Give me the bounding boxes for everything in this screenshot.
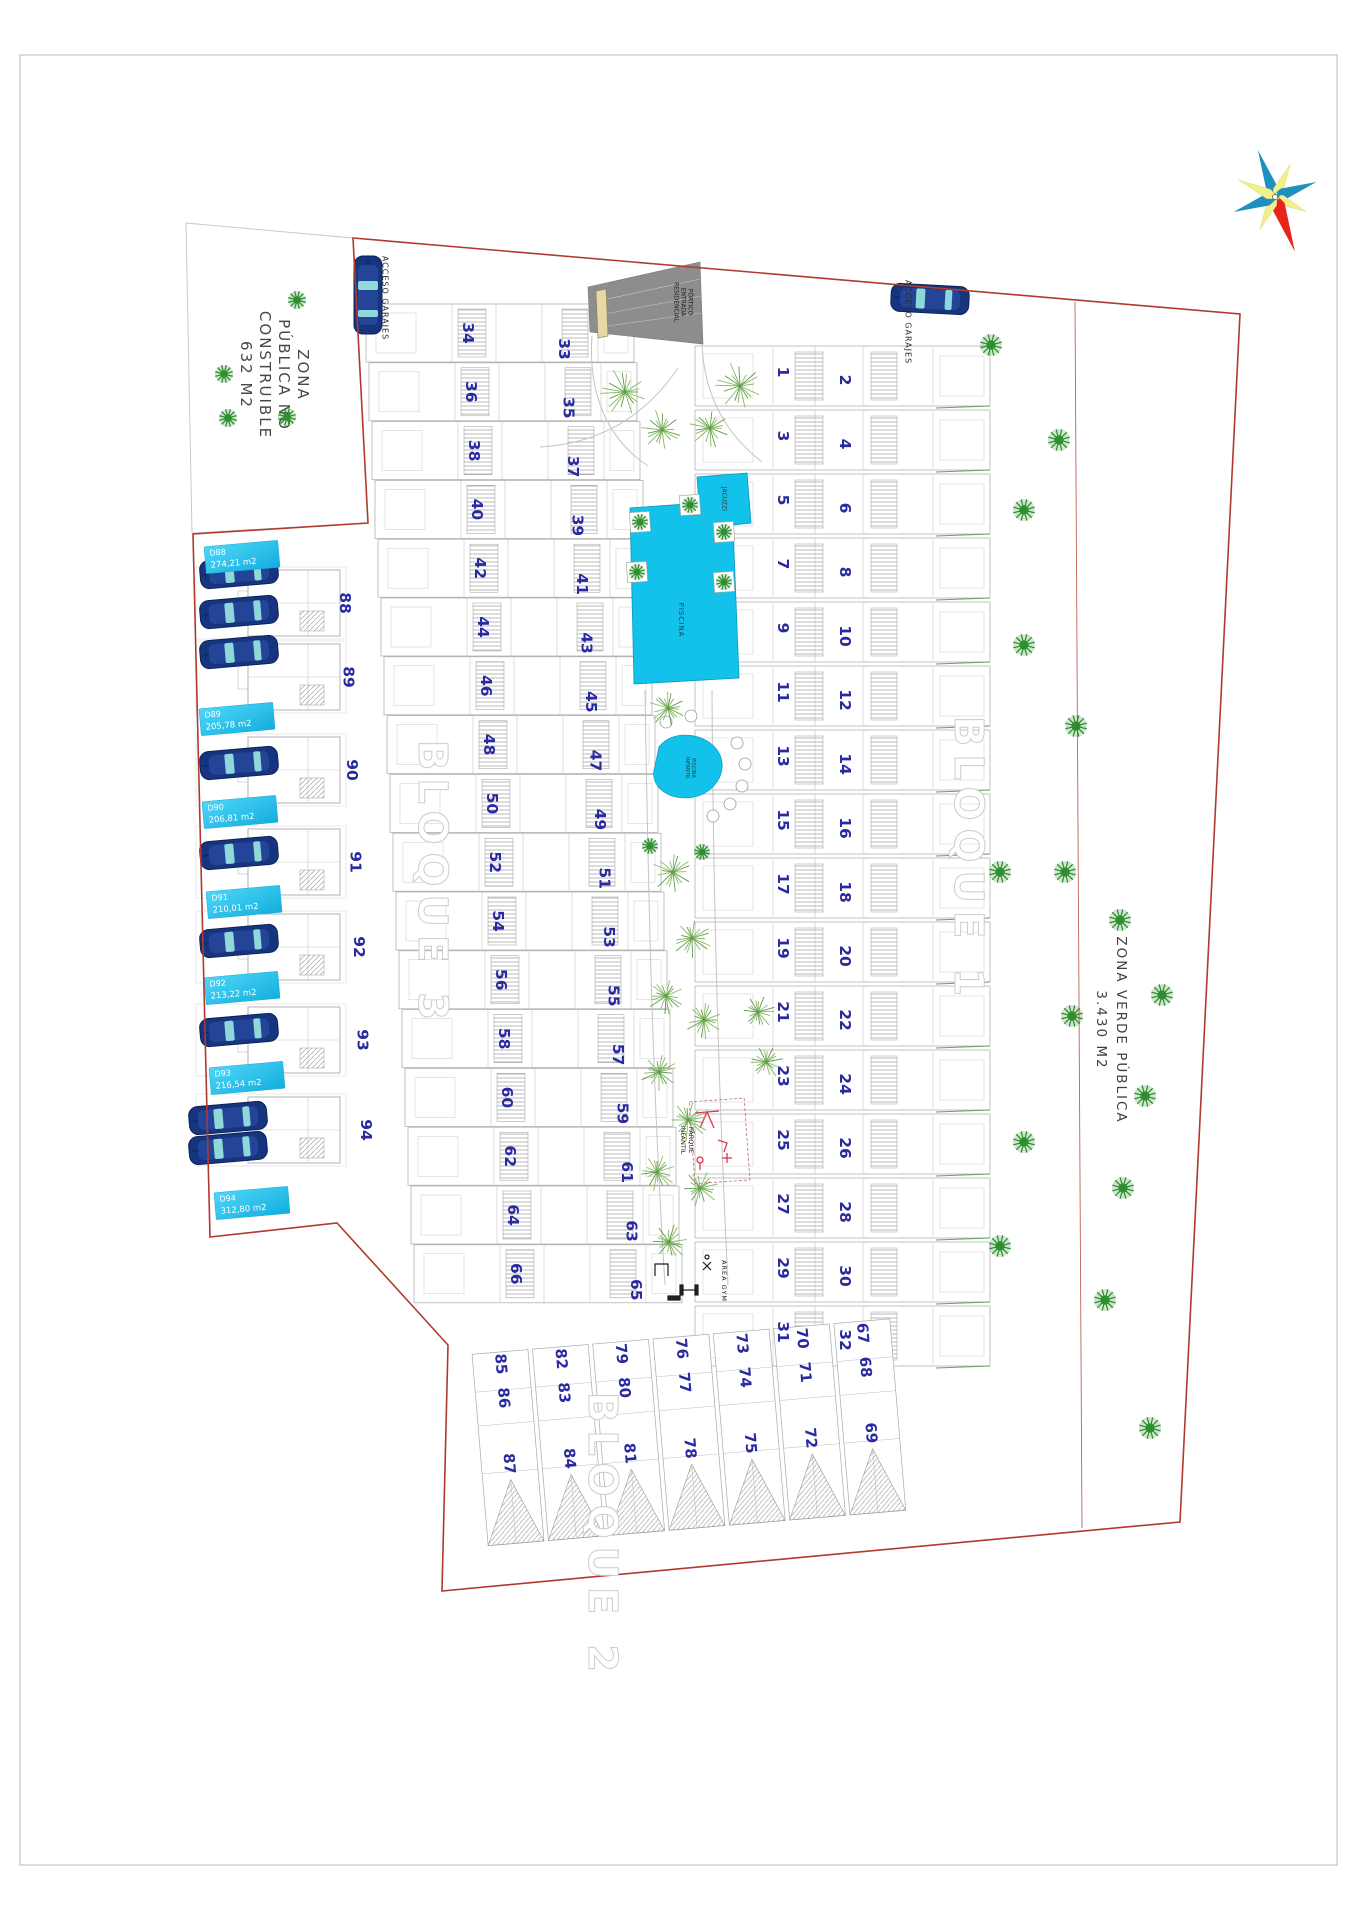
plot-number: 72 <box>801 1427 821 1449</box>
tree-icon <box>632 514 648 530</box>
parcel-code: D90 <box>207 802 224 812</box>
bloque3-row <box>405 1068 673 1126</box>
tree-icon <box>989 861 1011 883</box>
acceso-garajes-left-label: ACCESO GARAJES <box>381 256 390 340</box>
piscina-label: PISCINA <box>677 603 685 638</box>
tree-icon <box>1054 861 1076 883</box>
plot-number: 3 <box>774 431 792 442</box>
plot-number: 1 <box>774 367 792 378</box>
plot-number: 33 <box>555 338 573 360</box>
plot-number: 69 <box>861 1422 881 1444</box>
zona-publica-area: ZONA PÚBLICA NO CONSTRUIBLE 632 M2 <box>186 223 368 533</box>
parcel-code: D94 <box>219 1193 236 1203</box>
parcel-code: D91 <box>211 892 228 902</box>
plot-number: 73 <box>732 1332 752 1354</box>
plot-number: 94 <box>357 1119 375 1141</box>
plot-number: 88 <box>336 592 354 614</box>
plot-number: 30 <box>836 1265 854 1287</box>
tree-icon <box>288 291 306 309</box>
plot-number: 37 <box>564 456 582 478</box>
plot-number: 29 <box>774 1257 792 1279</box>
plot-number: 54 <box>489 910 507 932</box>
plot-number: 25 <box>774 1129 792 1151</box>
plot-number: 77 <box>675 1371 695 1393</box>
plot-number: 86 <box>494 1387 514 1409</box>
tree-icon <box>1094 1289 1116 1311</box>
plot-number: 32 <box>836 1329 854 1351</box>
bloque3-text: BLOQUE 3 <box>409 740 455 1028</box>
plot-number: 28 <box>836 1201 854 1223</box>
plot-number: 90 <box>343 759 361 781</box>
plot-number: 4 <box>836 439 854 450</box>
tree-icon <box>278 408 296 426</box>
zona-verde-area-value: 3.430 M2 <box>1093 990 1109 1069</box>
plot-number: 75 <box>741 1432 761 1454</box>
bloque3-row <box>384 657 652 715</box>
plot-number: 45 <box>582 691 600 713</box>
bloque2-text: BLOQUE 2 <box>579 1392 625 1680</box>
bloque1-text: BLOQUE 1 <box>945 716 991 1004</box>
plot-number: 42 <box>471 557 489 579</box>
plot-number: 87 <box>500 1452 520 1474</box>
plot-number: 8 <box>836 567 854 578</box>
plot-number: 7 <box>774 559 792 570</box>
plot-number: 83 <box>554 1382 574 1404</box>
tree-icon <box>1013 1131 1035 1153</box>
plot-number: 84 <box>560 1447 580 1469</box>
plot-number: 60 <box>498 1087 516 1109</box>
plot-number: 76 <box>672 1337 692 1359</box>
zona-verde-label: ZONA VERDE PÚBLICA <box>1113 936 1131 1123</box>
plot-number: 55 <box>605 985 623 1007</box>
zona-publica-label: ZONA <box>294 349 312 401</box>
acceso-garajes-right-label: ACCESO GARAJES <box>904 280 913 364</box>
plot-number: 59 <box>614 1103 632 1125</box>
plot-number: 27 <box>774 1193 792 1215</box>
plot-number: 35 <box>560 397 578 419</box>
bloque3-row <box>369 363 637 421</box>
plot-number: 58 <box>495 1028 513 1050</box>
plot-number: 61 <box>618 1161 636 1183</box>
plot-number: 36 <box>462 381 480 403</box>
plot-number: 22 <box>836 1009 854 1031</box>
bloque3-row <box>381 598 649 656</box>
plot-number: 65 <box>627 1279 645 1301</box>
plot-number: 52 <box>486 851 504 873</box>
plot-number: 50 <box>483 793 501 815</box>
plot-number: 48 <box>480 734 498 756</box>
plot-number: 71 <box>796 1361 816 1383</box>
tree-icon <box>980 334 1002 356</box>
plot-number: 56 <box>492 969 510 991</box>
zona-publica-label: CONSTRUIBLE <box>256 311 274 439</box>
tree-icon <box>219 409 237 427</box>
plot-number: 21 <box>774 1001 792 1023</box>
tree-icon <box>1109 909 1131 931</box>
plot-number: 11 <box>774 681 792 703</box>
plot-number: 34 <box>459 322 477 344</box>
tree-icon <box>716 574 732 590</box>
plot-number: 9 <box>774 623 792 634</box>
plot-number: 38 <box>465 440 483 462</box>
tree-icon <box>215 365 233 383</box>
tree-icon <box>716 524 732 540</box>
plot-number: 51 <box>596 867 614 889</box>
plot-number: 10 <box>836 625 854 647</box>
site-plan-page: ZONA PÚBLICA NO CONSTRUIBLE 632 M2 85868… <box>0 0 1357 1920</box>
plot-number: 12 <box>836 689 854 711</box>
plot-number: 82 <box>551 1348 571 1370</box>
tree-icon <box>642 838 658 854</box>
tree-icon <box>1151 984 1173 1006</box>
plot-number: 40 <box>468 499 486 521</box>
plot-number: 64 <box>504 1204 522 1226</box>
gym-label: AREA GYM <box>720 1260 728 1302</box>
plot-number: 23 <box>774 1065 792 1087</box>
tree-icon <box>694 844 710 860</box>
plot-number: 5 <box>774 495 792 506</box>
plot-number: 16 <box>836 817 854 839</box>
tree-icon <box>1112 1177 1134 1199</box>
plot-number: 92 <box>350 936 368 958</box>
plot-number: 70 <box>793 1327 813 1349</box>
plot-number: 74 <box>735 1366 755 1388</box>
plot-number: 47 <box>587 750 605 772</box>
plot-number: 19 <box>774 937 792 959</box>
plot-number: 63 <box>623 1220 641 1242</box>
plot-number: 24 <box>836 1073 854 1095</box>
tree-icon <box>1048 429 1070 451</box>
portico-column <box>596 289 608 338</box>
plot-number: 93 <box>354 1029 372 1051</box>
bloque3-row <box>378 539 646 597</box>
plot-number: 53 <box>600 926 618 948</box>
plot-number: 6 <box>836 503 854 514</box>
portico-label: RESIDENCIAL <box>673 282 680 323</box>
plot-number: 43 <box>578 632 596 654</box>
tree-icon <box>1065 715 1087 737</box>
plot-number: 26 <box>836 1137 854 1159</box>
plot-number: 20 <box>836 945 854 967</box>
tree-icon <box>1013 499 1035 521</box>
plot-number: 39 <box>569 515 587 537</box>
kids-pool-label: INFANTIL <box>684 757 690 779</box>
site-plan-svg: ZONA PÚBLICA NO CONSTRUIBLE 632 M2 85868… <box>0 0 1357 1920</box>
portico-label: PÓRTICO <box>687 289 694 316</box>
plot-number: 31 <box>774 1321 792 1343</box>
plot-number: 78 <box>680 1437 700 1459</box>
plot-number: 91 <box>347 851 365 873</box>
plot-number: 68 <box>856 1356 876 1378</box>
portico-label: ENTRADA <box>680 288 687 317</box>
plot-number: 79 <box>612 1343 632 1365</box>
plot-number: 46 <box>477 675 495 697</box>
parcel-code: D89 <box>204 709 221 719</box>
plot-number: 89 <box>340 666 358 688</box>
parcel-code: D92 <box>209 978 226 988</box>
zona-publica-area-value: 632 M2 <box>237 341 255 409</box>
plot-number: 2 <box>836 375 854 386</box>
plot-number: 66 <box>507 1263 525 1285</box>
tree-icon <box>1134 1085 1156 1107</box>
plot-number: 44 <box>474 616 492 638</box>
parcel-code: D88 <box>209 547 226 557</box>
tree-icon <box>1013 634 1035 656</box>
plot-number: 15 <box>774 809 792 831</box>
plot-number: 62 <box>501 1145 519 1167</box>
plot-number: 14 <box>836 753 854 775</box>
plot-number: 85 <box>491 1353 511 1375</box>
plot-number: 67 <box>853 1322 873 1344</box>
plot-number: 41 <box>573 573 591 595</box>
jacuzzi-label: JACUZZI <box>721 486 728 511</box>
tree-icon <box>1061 1005 1083 1027</box>
tree-icon <box>989 1235 1011 1257</box>
plot-number: 57 <box>609 1044 627 1066</box>
tree-icon <box>1139 1417 1161 1439</box>
tree-icon <box>682 497 698 513</box>
plot-number: 13 <box>774 745 792 767</box>
plot-number: 18 <box>836 881 854 903</box>
plot-number: 49 <box>591 809 609 831</box>
tree-icon <box>629 564 645 580</box>
parcel-code: D93 <box>214 1068 231 1078</box>
bloque3-row <box>375 480 643 538</box>
bloque3-row <box>372 422 640 480</box>
plot-number: 17 <box>774 873 792 895</box>
